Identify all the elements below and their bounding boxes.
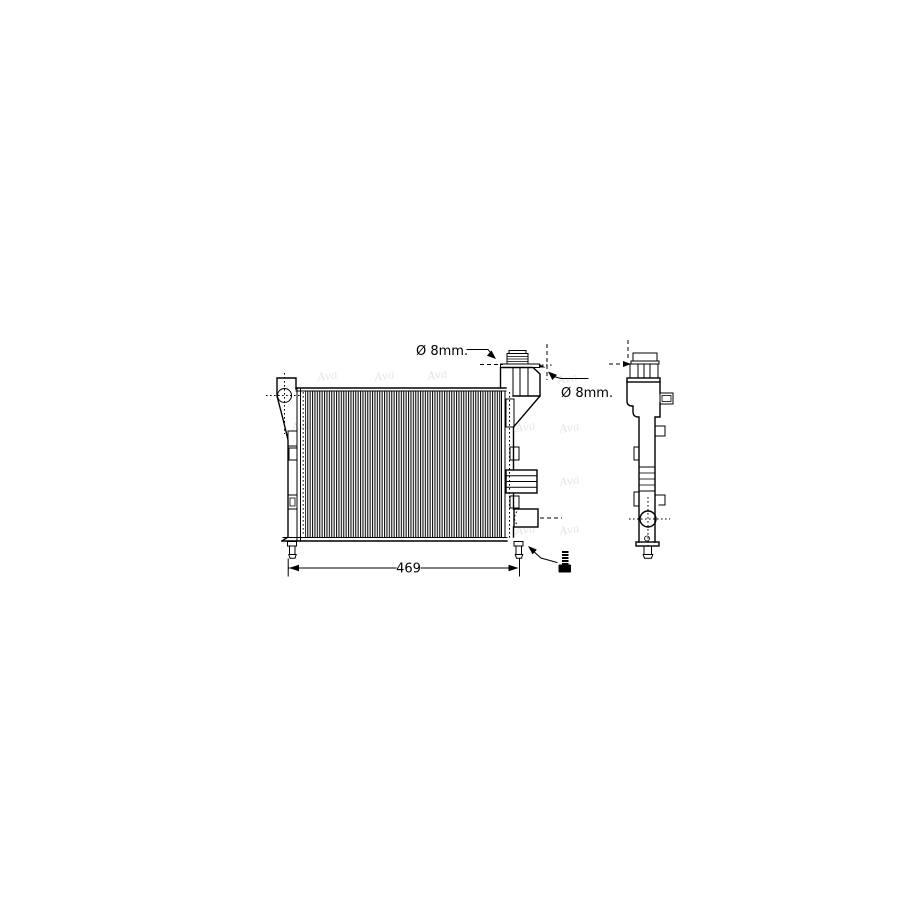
annotation-top-diameter: Ø 8mm. — [416, 344, 496, 359]
watermark-text: Ava — [557, 473, 580, 489]
right-mounting-pin — [514, 542, 523, 559]
left-profile — [627, 382, 639, 542]
side-construction-lines — [609, 340, 631, 367]
dimension-value: 469 — [396, 562, 421, 577]
dimension-width: 469 — [288, 559, 519, 577]
right-hook — [655, 495, 665, 505]
bracket-tab-inner — [290, 498, 295, 506]
dim-arrowhead-left — [289, 565, 299, 571]
side-body — [627, 382, 673, 558]
watermark-text: Ava — [513, 419, 536, 435]
diameter-label: Ø 8mm. — [416, 344, 468, 359]
leader-arrowhead — [548, 372, 557, 381]
leader-line — [534, 552, 557, 563]
leader-arrowhead — [487, 350, 496, 359]
neck-flange — [627, 378, 660, 382]
watermark-text: Ava — [557, 420, 580, 436]
tab-hatched — [510, 447, 519, 460]
watermark-text: Ava — [555, 371, 578, 387]
hatched-lug — [655, 426, 665, 436]
diameter-label: Ø 8mm. — [561, 386, 613, 401]
bottom-flange — [636, 542, 659, 546]
radiator-core — [282, 388, 507, 541]
screw-icon — [559, 551, 572, 573]
bracket-tab — [288, 495, 297, 509]
catalog-image-canvas: Ava Ava Ava Ava Ava Ava Ava Ava Ava Ava — [0, 0, 915, 915]
left-clip — [634, 447, 639, 460]
side-pin — [644, 546, 652, 555]
core-fins — [305, 391, 501, 537]
side-filler-cap — [627, 353, 660, 382]
left-side-frame — [288, 388, 303, 540]
watermark-text: Ava — [513, 522, 536, 538]
watermark-text: Ava — [425, 367, 448, 383]
mounting-pin-callout — [528, 546, 571, 573]
watermark-text: Ava — [372, 368, 395, 384]
left-clip — [634, 492, 639, 506]
watermark-text: Ava — [315, 368, 338, 384]
outlet-dotted-arc — [515, 512, 518, 525]
watermark-text: Ava — [557, 522, 580, 538]
radiator-drawing: Ava Ava Ava Ava Ava Ava Ava Ava Ava Ava — [0, 0, 915, 915]
bracket-tab-hatched — [289, 448, 297, 460]
side-view — [609, 340, 673, 558]
left-mounting-pin — [288, 542, 297, 559]
knurled-cap — [633, 353, 657, 361]
tab-hatched — [510, 496, 519, 508]
dim-arrowhead-right — [509, 565, 519, 571]
small-hole — [645, 536, 650, 541]
